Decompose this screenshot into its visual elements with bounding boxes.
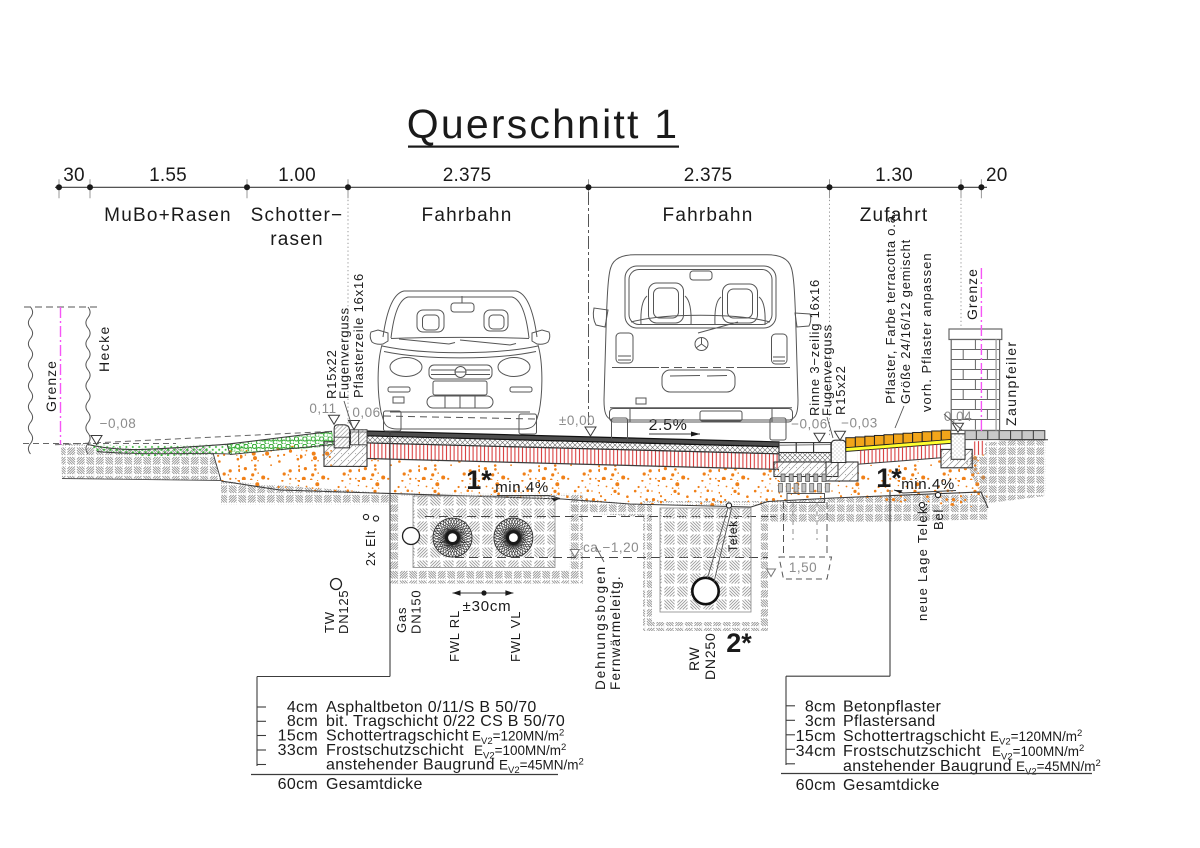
svg-text:0,06: 0,06 bbox=[352, 405, 380, 420]
svg-text:Bel: Bel bbox=[931, 509, 946, 530]
svg-text:MuBo+Rasen: MuBo+Rasen bbox=[104, 205, 232, 226]
svg-text:min.4%: min.4% bbox=[495, 479, 549, 496]
svg-text:60cm: 60cm bbox=[796, 777, 836, 794]
svg-text:Gesamtdicke: Gesamtdicke bbox=[326, 776, 423, 793]
svg-text:Fahrbahn: Fahrbahn bbox=[422, 205, 513, 226]
svg-text:Zaunpfeiler: Zaunpfeiler bbox=[1003, 341, 1019, 426]
svg-text:±0,00: ±0,00 bbox=[559, 413, 595, 428]
svg-text:FWL RL: FWL RL bbox=[447, 610, 462, 662]
svg-text:Pflasterzeile 16x16: Pflasterzeile 16x16 bbox=[351, 273, 366, 398]
svg-text:1.00: 1.00 bbox=[278, 165, 316, 186]
svg-text:1.55: 1.55 bbox=[149, 165, 187, 186]
svg-text:Grenze: Grenze bbox=[43, 360, 59, 412]
svg-text:rasen: rasen bbox=[270, 229, 324, 250]
svg-text:RW: RW bbox=[686, 646, 702, 671]
svg-text:ca.−1,20: ca.−1,20 bbox=[583, 540, 639, 555]
svg-text:30: 30 bbox=[63, 165, 85, 186]
svg-text:−0,06: −0,06 bbox=[791, 417, 828, 432]
svg-text:DN250: DN250 bbox=[702, 632, 718, 680]
svg-text:Querschnitt 1: Querschnitt 1 bbox=[407, 101, 679, 147]
svg-text:60cm: 60cm bbox=[278, 776, 318, 793]
svg-text:Fahrbahn: Fahrbahn bbox=[663, 205, 754, 226]
svg-text:Pflaster, Farbe terracotta o.ä: Pflaster, Farbe terracotta o.ä. bbox=[883, 211, 898, 404]
svg-text:2*: 2* bbox=[726, 628, 752, 658]
svg-text:Hecke: Hecke bbox=[96, 325, 112, 372]
svg-text:FWL VL: FWL VL bbox=[508, 611, 523, 662]
svg-text:2x Elt: 2x Elt bbox=[364, 530, 378, 566]
svg-text:DN125: DN125 bbox=[336, 590, 351, 634]
svg-text:Gas: Gas bbox=[394, 607, 409, 633]
svg-text:1*: 1* bbox=[876, 463, 902, 493]
svg-text:Fernwärmeleitg.: Fernwärmeleitg. bbox=[608, 575, 623, 690]
svg-text:2.375: 2.375 bbox=[443, 165, 492, 186]
svg-text:anstehender Baugrund: anstehender Baugrund bbox=[326, 757, 495, 774]
svg-text:33cm: 33cm bbox=[278, 742, 318, 759]
svg-text:−0,03: −0,03 bbox=[841, 416, 878, 431]
svg-text:Schotter−: Schotter− bbox=[251, 205, 344, 226]
svg-text:DN150: DN150 bbox=[409, 590, 424, 634]
svg-text:anstehender Baugrund: anstehender Baugrund bbox=[843, 758, 1012, 775]
svg-text:neue Lage Telek.: neue Lage Telek. bbox=[915, 501, 930, 621]
svg-text:2.375: 2.375 bbox=[684, 165, 733, 186]
svg-text:Dehnungsbogen: Dehnungsbogen bbox=[593, 565, 608, 690]
svg-text:Grenze: Grenze bbox=[964, 268, 980, 320]
svg-text:Fugenverguss: Fugenverguss bbox=[337, 307, 352, 399]
svg-text:1.30: 1.30 bbox=[875, 165, 913, 186]
svg-text:1*: 1* bbox=[466, 465, 492, 495]
svg-text:TW: TW bbox=[322, 611, 337, 633]
svg-text:0,11: 0,11 bbox=[309, 401, 336, 416]
svg-text:vorh. Pflaster anpassen: vorh. Pflaster anpassen bbox=[919, 252, 934, 412]
svg-text:0,04: 0,04 bbox=[944, 409, 972, 424]
svg-text:Gesamtdicke: Gesamtdicke bbox=[843, 777, 940, 794]
svg-text:34cm: 34cm bbox=[796, 743, 836, 760]
svg-text:1,50: 1,50 bbox=[789, 560, 817, 575]
svg-text:±30cm: ±30cm bbox=[463, 598, 512, 615]
svg-text:20: 20 bbox=[986, 165, 1008, 186]
svg-text:Telek.: Telek. bbox=[726, 516, 740, 552]
svg-text:Größe 24/16/12 gemischt: Größe 24/16/12 gemischt bbox=[898, 239, 913, 404]
svg-text:R15x22: R15x22 bbox=[833, 365, 848, 415]
svg-text:−0,08: −0,08 bbox=[100, 416, 137, 431]
